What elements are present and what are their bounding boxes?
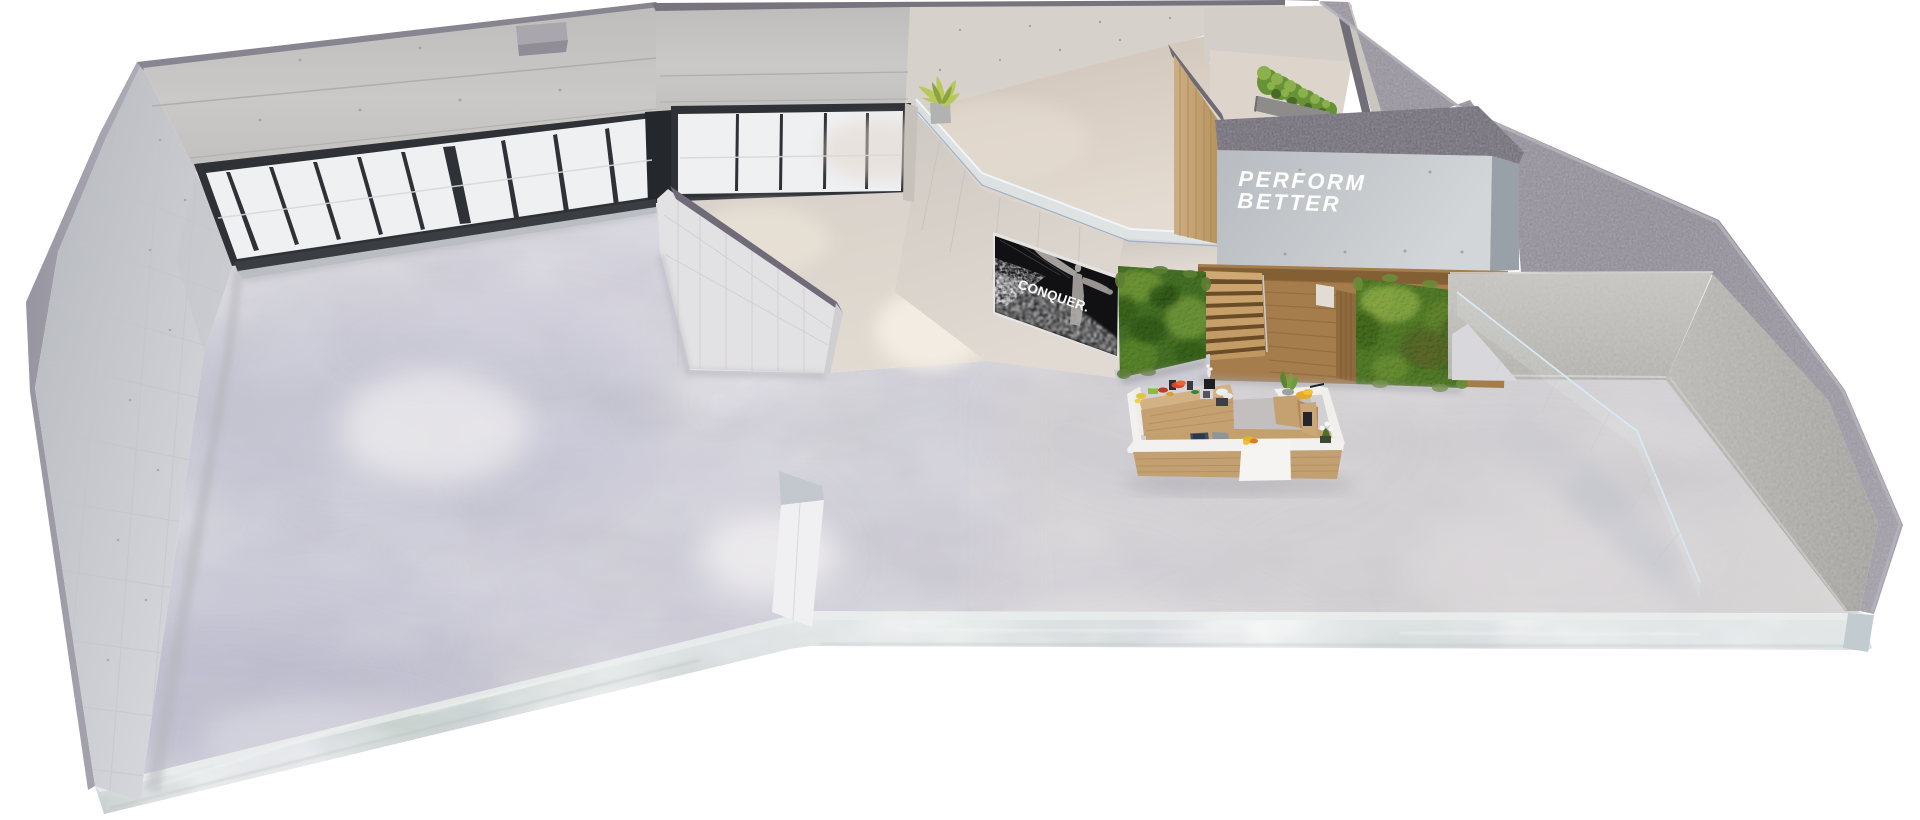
svg-text:BETTER: BETTER <box>1237 188 1341 217</box>
